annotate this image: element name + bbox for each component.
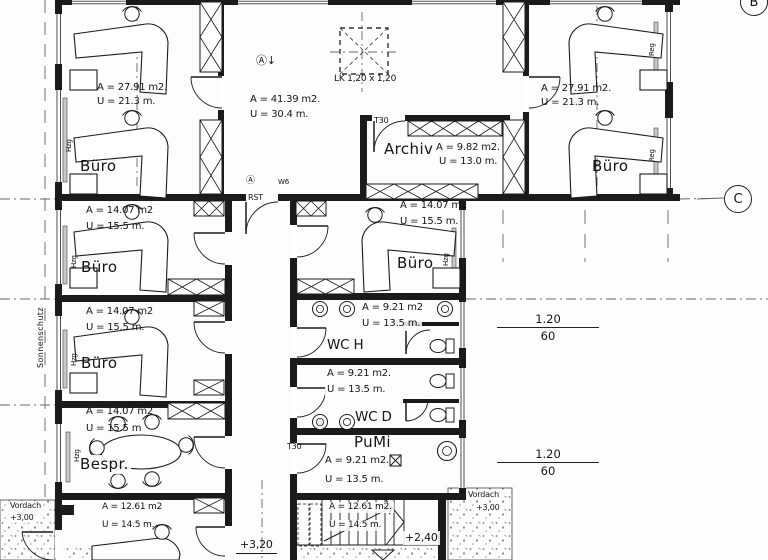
perimeter-label-stairs: U = 14.5 m. <box>327 520 383 531</box>
area-label-stairs: A = 12.61 m2. <box>327 502 394 513</box>
perimeter-label-buero-tr: U = 21.3 m. <box>541 97 599 110</box>
room-name-buero-tl: Büro <box>80 157 116 176</box>
perimeter-label-buero-mid: U = 15.5 m. <box>400 216 458 229</box>
skylight-label: LK 1,20 x 1,20 <box>334 74 396 85</box>
perimeter-label-hall: U = 30.4 m. <box>250 109 308 122</box>
level-label-320: +3,20 <box>236 538 277 554</box>
label-w6: W6 <box>278 178 289 187</box>
perimeter-label-buero-l1: U = 15.5 m. <box>86 221 144 234</box>
area-label-wc-h: A = 9.21 m2 <box>360 302 425 315</box>
level-label-240: +2,40 <box>403 531 440 545</box>
perimeter-label-bespr: U = 15.5 m <box>86 423 141 436</box>
window-dimension-upper: 1.20 60 <box>497 312 599 343</box>
door-label-t30-pumi: T30 <box>287 442 301 452</box>
grid-bubble-c: C <box>724 185 752 213</box>
shelf-label-reg-1: Reg <box>648 43 657 56</box>
ground-hatch <box>300 548 436 560</box>
shelf-label-reg-2: Reg <box>648 149 657 162</box>
area-label-buero-l2: A = 14.07 m2 <box>86 306 153 319</box>
area-label-hall: A = 41.39 m2. <box>250 94 320 107</box>
area-label-pumi: A = 9.21 m2. <box>325 455 389 468</box>
perimeter-label-wc-h: U = 13.5 m. <box>360 318 422 331</box>
vordach-level-right: +3,00 <box>474 503 502 513</box>
vordach-label-left: Vordach <box>8 501 43 511</box>
perimeter-label-room-bl: U = 14.5 m. <box>102 520 154 531</box>
radiator-label-hzg-3: Hzg <box>70 353 79 366</box>
symbol-a-corridor-icon: Ⓐ <box>246 176 255 187</box>
perimeter-label-archiv: U = 13.0 m. <box>439 156 497 169</box>
room-name-buero-mid: Büro <box>397 254 433 273</box>
room-name-pumi: PuMi <box>354 433 391 452</box>
floor-plan-sheet: A = 27.91 m2. U = 21.3 m. Büro Ⓐ↓ A = 41… <box>0 0 768 560</box>
perimeter-label-buero-l2: U = 15.5 m. <box>86 322 144 335</box>
perimeter-label-buero-tl: U = 21.3 m. <box>97 96 155 109</box>
radiator-label-hzg-5: Hzg <box>442 253 451 266</box>
door-label-t30-archiv: T30 <box>374 116 388 126</box>
area-label-wc-d: A = 9.21 m2. <box>325 368 393 381</box>
room-name-bespr: Bespr. <box>78 455 131 474</box>
section-marker-a-icon: Ⓐ↓ <box>256 54 276 68</box>
perimeter-label-pumi: U = 13.5 m. <box>325 474 383 487</box>
pumi-sink-symbol <box>390 455 401 466</box>
area-label-buero-l1: A = 14.07 m2 <box>86 205 153 218</box>
window-dimension-lower: 1.20 60 <box>497 447 599 478</box>
label-rst: RST <box>248 193 263 203</box>
room-name-wc-d: WC D <box>355 409 392 426</box>
room-name-wc-h: WC H <box>327 337 363 354</box>
area-label-archiv: A = 9.82 m2. <box>436 142 500 155</box>
room-name-buero-l1: Büro <box>81 258 117 277</box>
radiator-label-hzg-1: Hzg <box>65 139 74 152</box>
area-label-buero-tl: A = 27.91 m2. <box>97 82 167 95</box>
radiator-label-hzg-2: Hzg <box>70 255 79 268</box>
perimeter-label-wc-d: U = 13.5 m. <box>325 384 387 397</box>
sonnenschutz-label: Sonnenschutz <box>36 307 46 368</box>
room-name-buero-l2: Büro <box>81 354 117 373</box>
skylight-symbol <box>340 28 388 74</box>
vordach-label-right: Vordach <box>466 490 501 500</box>
radiator-label-hzg-4: Hzg <box>73 449 82 462</box>
area-label-buero-tr: A = 27.91 m2. <box>541 83 611 96</box>
room-name-archiv: Archiv <box>384 140 433 159</box>
room-name-buero-tr: Büro <box>592 157 628 176</box>
vordach-level-left: +3,00 <box>8 513 36 523</box>
area-label-buero-mid: A = 14.07 m2 <box>400 200 467 213</box>
area-label-room-bl: A = 12.61 m2 <box>102 502 162 513</box>
area-label-bespr: A = 14.07 m2 <box>86 406 153 419</box>
